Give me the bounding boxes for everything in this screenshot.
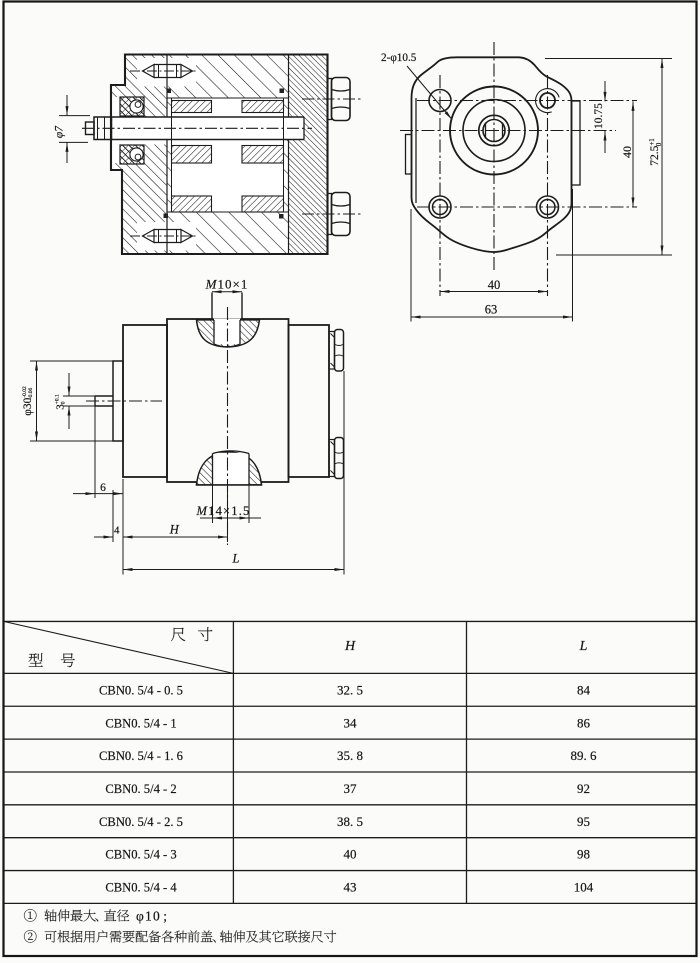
svg-text:40: 40 [344,847,357,862]
svg-text:φ30-0.02-0.06: φ30-0.02-0.06 [22,386,34,416]
svg-text:H: H [169,523,180,537]
svg-text:34: 34 [344,715,358,730]
svg-text:32. 5: 32. 5 [337,682,363,697]
svg-text:43: 43 [344,880,357,895]
svg-text:CBN0. 5/4 - 2: CBN0. 5/4 - 2 [105,782,176,796]
svg-text:98: 98 [577,847,590,862]
svg-text:φ7: φ7 [54,125,66,138]
svg-text:6: 6 [100,482,106,494]
svg-text:CBN0. 5/4 - 4: CBN0. 5/4 - 4 [105,881,177,895]
svg-text:89. 6: 89. 6 [571,748,598,763]
svg-text:M14×1.5: M14×1.5 [196,504,251,518]
svg-text:CBN0. 5/4 - 0. 5: CBN0. 5/4 - 0. 5 [99,683,183,697]
svg-text:CBN0. 5/4 - 1. 6: CBN0. 5/4 - 1. 6 [99,749,183,763]
svg-text:63: 63 [485,303,498,317]
svg-text:92: 92 [577,781,590,796]
svg-text:104: 104 [574,880,594,895]
svg-text:37: 37 [344,781,358,796]
svg-text:2-φ10.5: 2-φ10.5 [381,52,417,64]
svg-text:L: L [579,639,588,654]
svg-text:95: 95 [577,814,590,829]
svg-text:40: 40 [488,278,501,292]
svg-text:86: 86 [577,715,591,730]
svg-text:L: L [232,552,240,566]
svg-text:35. 8: 35. 8 [337,748,363,763]
svg-text:φ10 ;: φ10 ; [136,909,168,924]
svg-text:84: 84 [577,682,591,697]
svg-text:H: H [344,639,356,654]
svg-text:M10×1: M10×1 [205,277,249,292]
svg-text:4: 4 [114,525,120,537]
svg-text:40: 40 [620,146,634,158]
svg-text:38. 5: 38. 5 [337,814,363,829]
svg-text:10.75: 10.75 [593,103,605,129]
svg-text:CBN0. 5/4 - 3: CBN0. 5/4 - 3 [105,848,176,862]
svg-text:CBN0. 5/4 - 1: CBN0. 5/4 - 1 [105,716,176,730]
svg-text:CBN0. 5/4 - 2. 5: CBN0. 5/4 - 2. 5 [99,815,183,829]
